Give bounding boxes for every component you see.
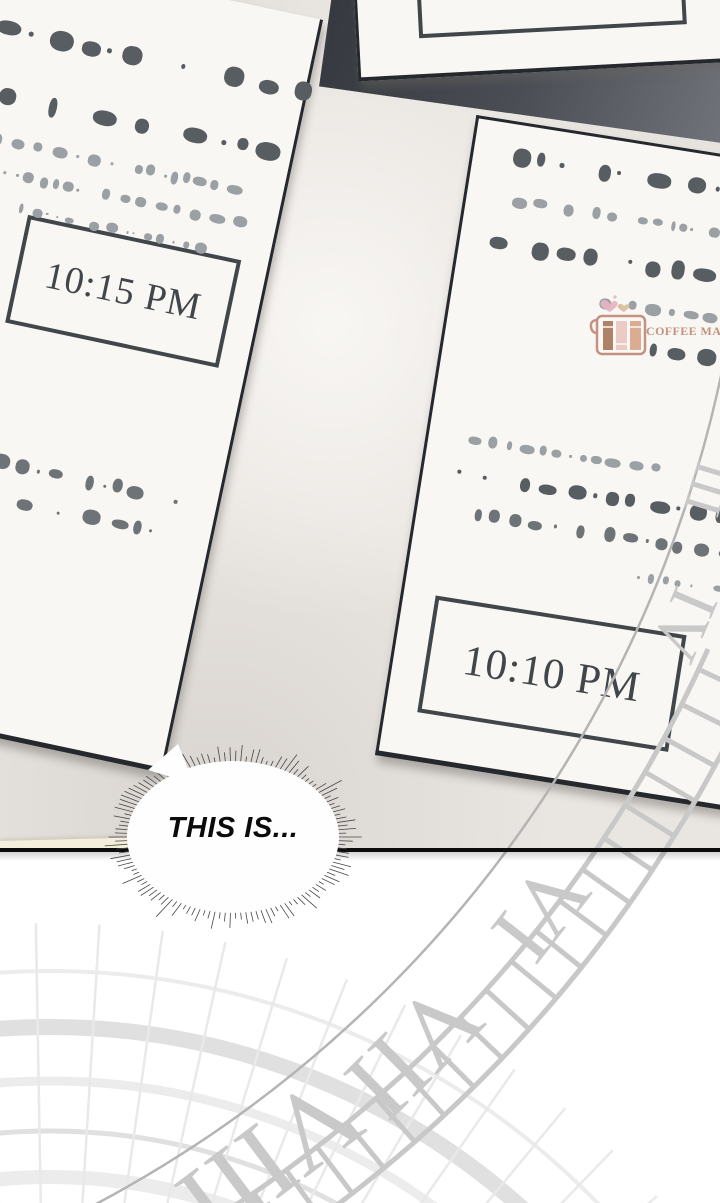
redacted-text-blob [148,529,152,533]
redacted-text-blob [188,208,201,221]
redacted-text-blob [226,183,243,195]
redacted-text-blob [155,233,165,245]
redacted-text-blob [693,542,710,558]
redacted-text-blob [629,460,644,471]
redacted-text-blob [210,180,220,191]
redacted-text-blob [126,231,129,234]
redacted-text-blob [52,179,60,190]
redacted-text-blob [637,576,640,579]
redacted-text-blob [647,574,655,585]
redacted-text-blob [293,80,313,102]
redacted-text-blob [593,493,597,498]
redacted-text-blob [638,216,649,225]
redacted-text-blob [489,235,508,250]
redacted-text-blob [39,177,49,190]
redacted-text-blob [81,508,101,526]
redacted-text-blob [87,154,102,168]
redacted-text-blob [47,28,75,53]
redacted-text-blob [3,170,6,174]
redacted-text-blob [652,218,663,227]
redacted-text-blob [531,242,550,262]
redacted-text-blob [0,132,3,147]
redacted-text-blob [628,259,633,264]
redacted-text-blob [62,181,75,193]
redacted-text-blob [237,137,250,151]
coffee-mug-icon [588,294,648,358]
redacted-text-blob [16,174,19,178]
redacted-text-blob [592,206,601,219]
redacted-text-blob [132,520,143,536]
redacted-text-blob [103,484,107,489]
note-card-left: 10:15 PM [0,0,323,773]
time-box-left: 10:15 PM [5,215,241,368]
redacted-text-blob [134,196,146,208]
redacted-text-blob [222,65,246,89]
redacted-text-blob [604,457,621,468]
redacted-text-blob [18,203,24,213]
time-box-right: 10:10 PM [417,596,686,752]
time-box-top: 10:10 PM [413,0,687,38]
redacted-text-blob [111,477,124,493]
redacted-text-blob [670,220,676,231]
redacted-text-blob [170,171,180,185]
redacted-text-blob [0,18,23,38]
redacted-text-blob [582,248,599,267]
redacted-text-blob [569,455,572,458]
time-label-right: 10:10 PM [460,635,644,711]
redacted-text-blob [56,511,60,515]
redacted-text-blob [605,491,620,506]
redacted-text-blob [671,260,686,280]
redacted-text-blob [164,174,167,178]
redacted-text-blob [692,267,717,283]
redacted-text-blob [183,241,190,249]
redacted-text-blob [646,172,672,190]
redacted-text-blob [46,212,49,215]
redacted-text-blob [133,117,150,135]
redacted-text-blob [134,164,143,175]
redacted-text-blob [488,509,501,523]
time-label-left: 10:15 PM [41,253,206,329]
redacted-text-blob [0,87,18,107]
redacted-text-blob [107,47,113,53]
redacted-text-blob [689,503,708,521]
redacted-text-blob [606,212,617,223]
redacted-text-blob [125,485,145,502]
redacted-text-blob [511,197,528,210]
redacted-text-blob [22,171,35,184]
redacted-text-blob [555,246,576,262]
redacted-text-blob [550,448,561,458]
redacted-text-blob [539,445,548,456]
redacted-text-blob [76,155,79,159]
redacted-text-blob [536,152,546,168]
redacted-text-blob [562,204,574,217]
redacted-text-blob [623,532,639,543]
redacted-text-blob [506,441,512,450]
redacted-text-blob [690,228,693,231]
redacted-text-blob [715,187,720,192]
redacted-text-blob [676,506,680,511]
redacted-text-blob [651,463,662,472]
redacted-text-blob [654,538,668,551]
redacted-text-blob [483,476,487,481]
redacted-text-blob [487,436,498,450]
redacted-text-blob [110,162,113,166]
redacted-text-blob [715,508,720,524]
redacted-text-blob [172,241,175,244]
redacted-text-blob [603,527,616,543]
redacted-text-blob [474,509,482,522]
redacted-text-blob [508,513,522,528]
redacted-text-blob [182,125,209,145]
redacted-text-blob [468,436,482,445]
redacted-text-blob [173,499,177,504]
redacted-text-blob [671,541,683,554]
redacted-text-blob [559,162,564,167]
watermark-text: COFFEE MANGA [646,324,720,339]
redacted-text-blob [519,477,532,493]
speech-bubble-text: THIS IS... [113,812,353,845]
redacted-text-blob [209,213,226,225]
redacted-text-blob [56,216,59,219]
redacted-text-blob [80,40,102,58]
redacted-text-blob [111,518,129,530]
redacted-text-blob [33,142,44,153]
redacted-text-blob [679,223,688,232]
redacted-text-blob [121,44,145,67]
redacted-text-blob [221,140,227,146]
redacted-text-blob [232,215,248,228]
redacted-text-blob [457,469,461,474]
redacted-text-blob [708,227,720,238]
redacted-text-blob [567,484,587,501]
note-card-right: 10:10 PM [375,115,720,823]
redacted-text-blob [182,172,192,184]
redacted-text-blob [624,493,636,507]
redacted-text-blob [91,108,118,128]
redacted-text-blob [172,204,181,215]
redacted-text-blob [537,483,556,496]
redacted-text-blob [617,170,622,175]
redacted-text-blob [690,584,693,587]
redacted-text-blob [10,138,25,151]
redacted-text-blob [14,458,32,475]
redacted-text-blob [576,525,586,540]
redacted-text-blob [519,444,535,455]
redacted-text-blob [645,260,662,278]
redacted-text-blob [76,188,79,192]
redacted-text-blob [155,202,169,212]
redacted-text-blob [597,164,612,182]
redacted-text-blob [16,498,34,512]
redacted-text-blob [47,97,59,118]
redacted-text-blob [257,78,280,97]
redacted-text-blob [132,232,135,235]
redacted-text-blob [29,31,35,37]
redacted-text-blob [192,176,208,188]
redacted-text-blob [0,452,11,470]
redacted-text-blob [48,468,64,480]
manga-page: 10:10 PM 10:10 PM 10:15 PM III IV VI VII… [0,0,720,1203]
redacted-text-blob [532,198,547,209]
redacted-text-blob [254,140,282,163]
redacted-text-blob [101,188,111,201]
redacted-text-blob [527,520,543,531]
redacted-text-blob [145,164,156,177]
redacted-text-blob [120,194,132,204]
redacted-text-blob [512,147,533,169]
watermark: COFFEE MANGA [588,294,720,358]
redacted-text-blob [712,584,720,592]
redacted-text-blob [52,145,69,159]
redacted-text-blob [590,456,602,465]
redacted-text-blob [84,475,95,492]
redacted-text-blob [649,500,671,515]
redacted-text-blob [646,539,650,543]
redacted-text-blob [554,525,558,529]
redacted-text-blob [662,576,669,585]
redacted-text-blob [686,176,707,195]
redacted-text-blob [36,469,40,474]
redacted-text-blob [674,580,682,588]
redacted-text-blob [180,64,186,70]
redacted-text-blob [579,454,588,463]
